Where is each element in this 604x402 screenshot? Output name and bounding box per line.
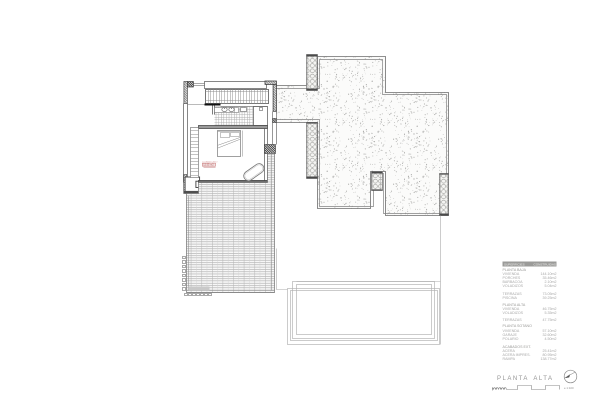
svg-text:CONSTRUIDAS: CONSTRUIDAS <box>533 262 556 266</box>
svg-text:SUPERFICIES: SUPERFICIES <box>504 262 525 266</box>
svg-text:12.55 m2: 12.55 m2 <box>203 164 214 167</box>
